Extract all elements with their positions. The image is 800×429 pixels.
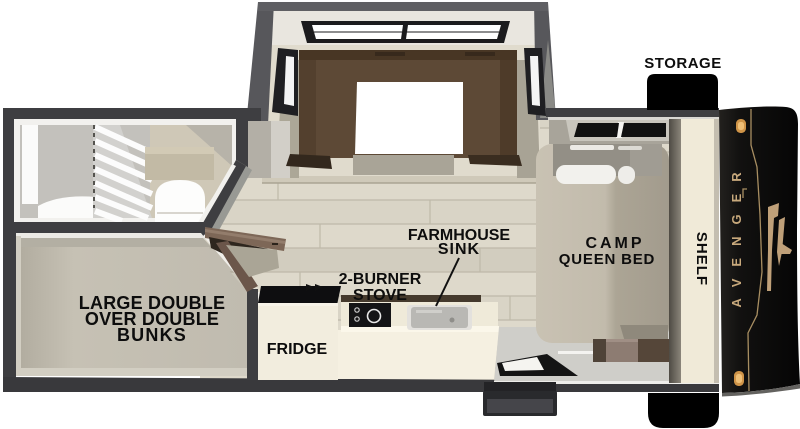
svg-text:2-BURNER: 2-BURNER xyxy=(339,271,422,288)
svg-text:STORAGE: STORAGE xyxy=(644,55,721,72)
svg-text:CAMP: CAMP xyxy=(585,235,644,252)
svg-text:FRIDGE: FRIDGE xyxy=(267,341,328,358)
svg-text:BUNKS: BUNKS xyxy=(117,325,187,345)
svg-text:STOVE: STOVE xyxy=(353,287,407,304)
svg-text:QUEEN BED: QUEEN BED xyxy=(559,251,655,268)
svg-text:SINK: SINK xyxy=(438,241,480,258)
svg-text:SHELF: SHELF xyxy=(693,232,710,286)
svg-text:AVENGER: AVENGER xyxy=(729,160,744,307)
